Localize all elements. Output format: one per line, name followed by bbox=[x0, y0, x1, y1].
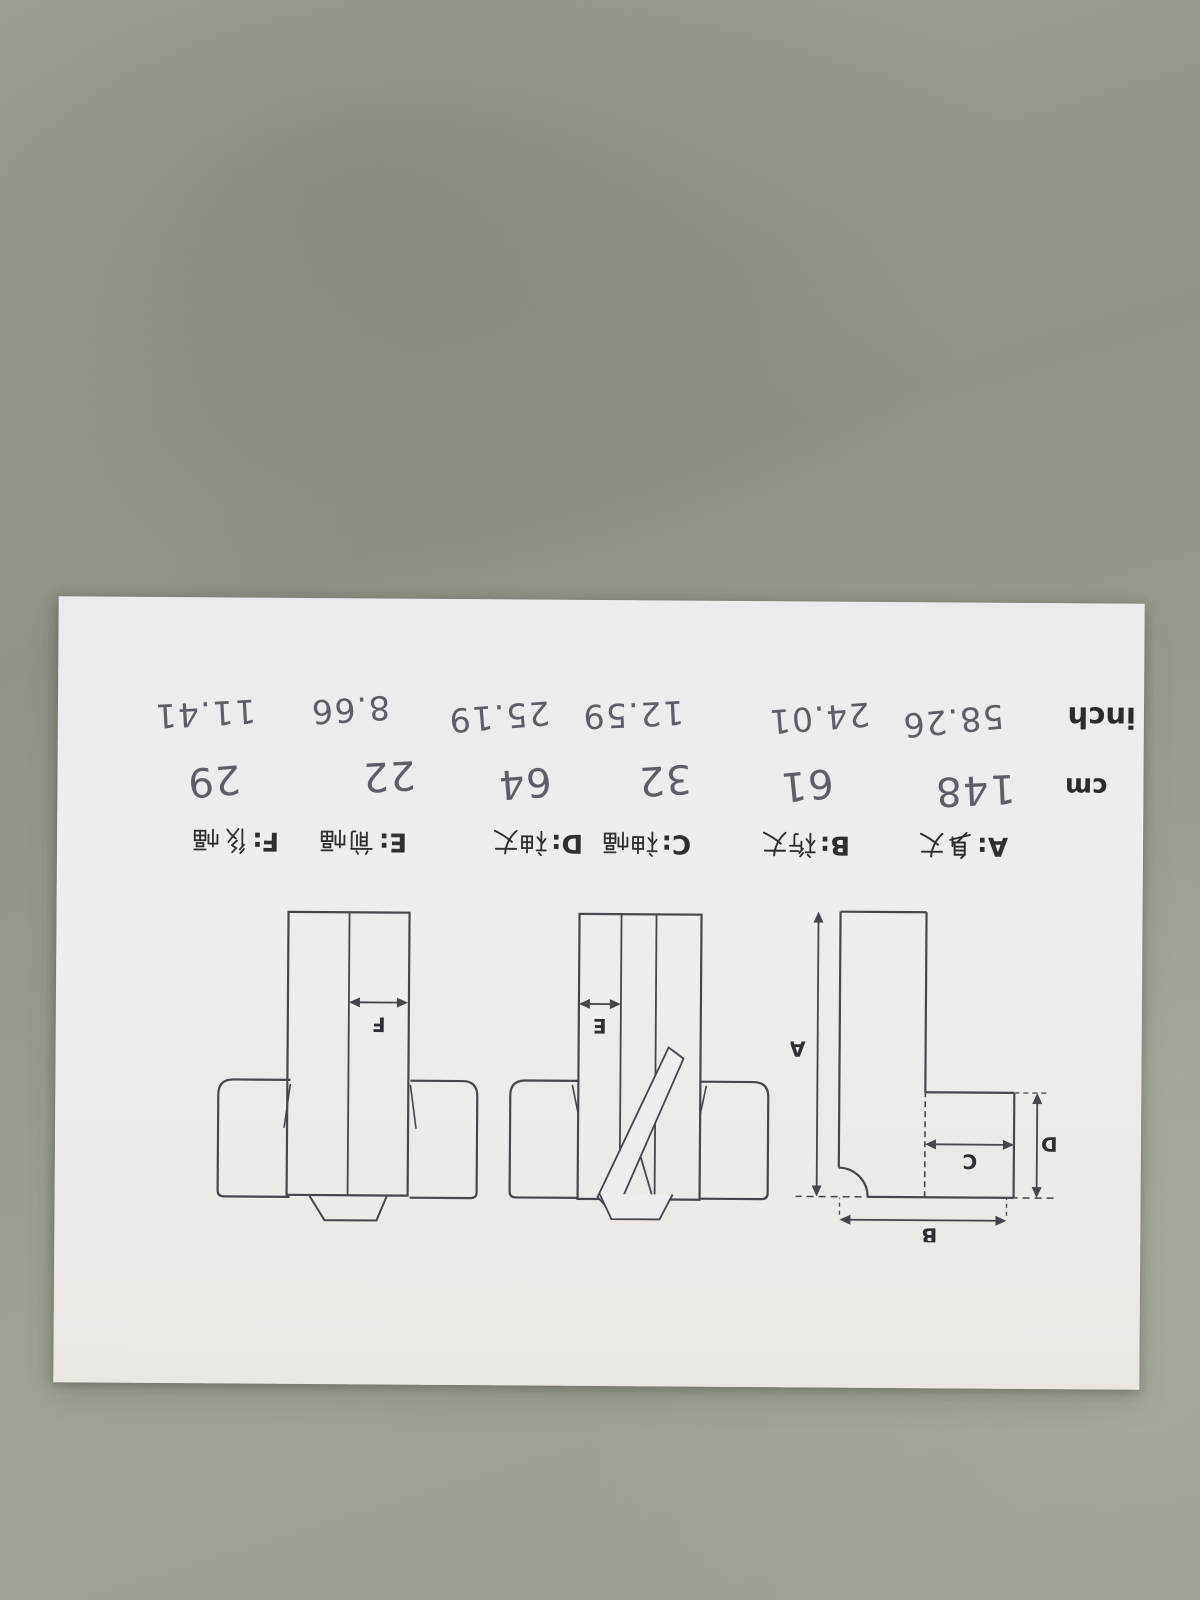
label-B: B bbox=[921, 1223, 937, 1243]
inch-value-A: 58.26 bbox=[900, 697, 1005, 746]
legend-code-D: D: bbox=[551, 828, 583, 858]
legend-code-F: F: bbox=[252, 826, 279, 856]
label-F: F bbox=[372, 1012, 386, 1036]
kimono-back-width-diagram: F bbox=[214, 908, 481, 1225]
back-collar-hexagon bbox=[599, 1194, 672, 1220]
legend-item-C: C: 袖幅 bbox=[602, 828, 691, 859]
cm-value-E: 22 bbox=[360, 751, 416, 800]
kanji-yukitake bbox=[761, 830, 817, 858]
legend-item-B: B: 裄丈 bbox=[761, 829, 850, 860]
inch-value-D: 25.19 bbox=[447, 693, 552, 740]
measurement-sheet-paper: B A C D E bbox=[53, 596, 1144, 1390]
front-panel-seam-left bbox=[655, 914, 657, 1199]
cm-value-F: 29 bbox=[185, 755, 242, 805]
inch-unit-label: inch bbox=[1067, 700, 1136, 734]
kanji-sodetake bbox=[492, 828, 548, 856]
back-collar-trapezoid bbox=[309, 1196, 386, 1221]
cm-unit-label: cm bbox=[1065, 771, 1108, 801]
cm-value-B: 61 bbox=[777, 759, 835, 810]
kanji-sodehaba bbox=[602, 829, 658, 857]
label-C: C bbox=[962, 1150, 977, 1174]
label-E: E bbox=[593, 1014, 607, 1038]
kanji-ushirohaba bbox=[193, 826, 249, 854]
label-A: A bbox=[789, 1036, 805, 1060]
collar-curve bbox=[839, 1168, 868, 1197]
legend-code-C: C: bbox=[661, 828, 691, 858]
kimono-outline bbox=[839, 912, 1016, 1198]
inch-value-C: 12.59 bbox=[581, 693, 685, 737]
cm-value-A: 148 bbox=[934, 765, 1017, 815]
center-back-seam bbox=[348, 912, 350, 1195]
legend-item-F: F: 後幅 bbox=[193, 825, 279, 856]
legend-item-E: E: 前幅 bbox=[320, 826, 407, 857]
inch-value-F: 11.41 bbox=[153, 692, 257, 736]
legend-code-B: B: bbox=[820, 830, 850, 860]
label-D: D bbox=[1041, 1132, 1058, 1156]
legend-code-A: A: bbox=[977, 831, 1008, 861]
legend-item-D: D: 袖丈 bbox=[492, 827, 583, 858]
inch-value-B: 24.01 bbox=[767, 695, 872, 742]
kanji-midake bbox=[918, 831, 974, 859]
crossed-collar-band bbox=[597, 1047, 683, 1217]
arrow-C bbox=[933, 1144, 1006, 1145]
arrow-B bbox=[839, 1198, 1006, 1221]
kimono-body-measurement-diagram: B A C D bbox=[789, 901, 1061, 1243]
sleeve-opening-slits bbox=[284, 1084, 416, 1129]
cm-value-D: 64 bbox=[496, 757, 553, 807]
kimono-front-width-diagram: E bbox=[499, 905, 781, 1227]
cm-value-C: 32 bbox=[636, 755, 693, 804]
kanji-maehaba bbox=[320, 827, 376, 855]
sleeve-seam-dashed bbox=[925, 1092, 926, 1197]
legend-item-A: A: 身丈 bbox=[918, 830, 1008, 861]
arrow-A bbox=[817, 921, 819, 1188]
back-body-outline bbox=[284, 912, 418, 1196]
arrowheads bbox=[811, 911, 1043, 1226]
inch-value-E: 8.66 bbox=[309, 688, 391, 732]
legend-code-E: E: bbox=[379, 826, 407, 856]
